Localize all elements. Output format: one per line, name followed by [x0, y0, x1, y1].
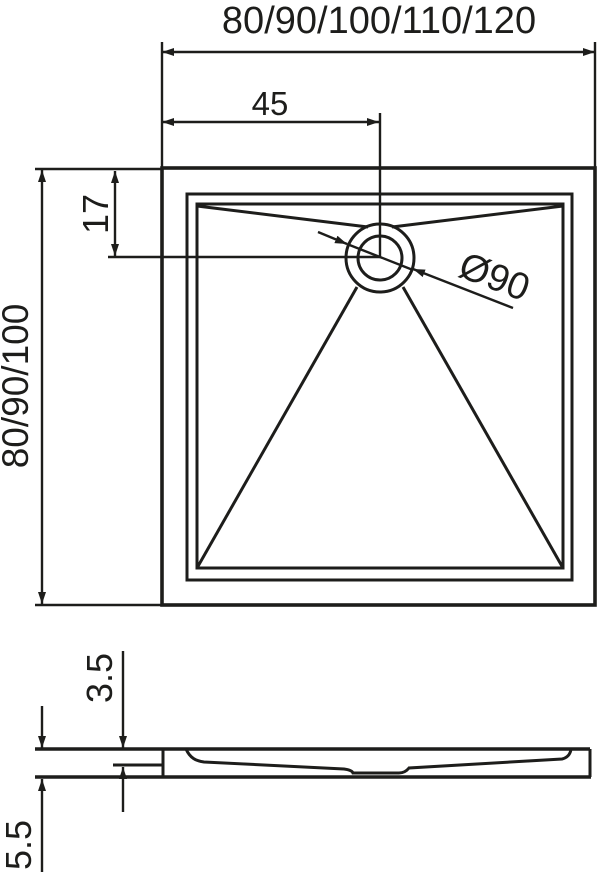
diameter-leader-upper	[318, 232, 347, 244]
total-height-dimension: 5.5	[0, 706, 42, 872]
tray-outer-edge	[162, 168, 595, 605]
floor-slope-line-top-left	[197, 206, 368, 227]
floor-slope-line-top-right	[392, 206, 563, 227]
floor-height-label: 3.5	[79, 653, 120, 703]
drain-x-dimension: 45	[162, 85, 380, 258]
drain-y-dimension-label: 17	[75, 194, 116, 234]
depth-dimension-label: 80/90/100	[0, 304, 36, 469]
side-view	[35, 749, 591, 777]
technical-drawing-sheet: 80/90/100/110/120 45 80/90/100 17	[0, 0, 600, 878]
basin-edge	[197, 204, 563, 568]
floor-slope-line-bottom-left	[197, 287, 357, 568]
floor-slope-line-bottom-right	[403, 287, 563, 568]
floor-height-dimension: 3.5	[79, 651, 123, 812]
drain-y-dimension: 17	[75, 171, 380, 257]
width-dimension: 80/90/100/110/120	[162, 0, 595, 168]
total-height-label: 5.5	[0, 820, 39, 870]
drain-x-dimension-label: 45	[252, 85, 289, 122]
width-dimension-label: 80/90/100/110/120	[222, 0, 536, 42]
plan-view	[162, 168, 595, 605]
shower-tray-drawing: 80/90/100/110/120 45 80/90/100 17	[0, 0, 600, 878]
floor-profile	[186, 749, 571, 773]
